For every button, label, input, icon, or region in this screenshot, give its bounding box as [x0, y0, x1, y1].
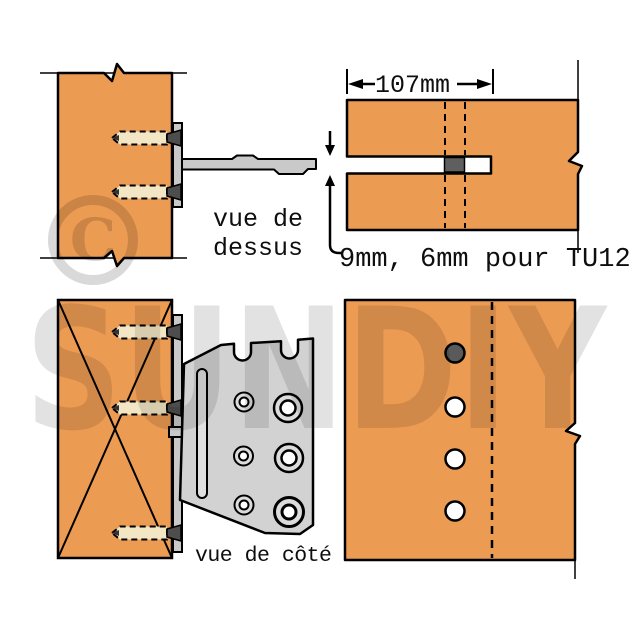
filled-drill-hole — [446, 344, 465, 363]
drill-hole — [446, 502, 465, 521]
bracket-arm-cross-section — [445, 158, 465, 173]
bolt-hole — [274, 394, 304, 527]
wood-post-top-view — [58, 64, 172, 266]
top-view-caption-line2: dessus — [213, 234, 303, 263]
beam-face-view-group — [345, 300, 580, 579]
screw — [112, 400, 181, 416]
screw — [112, 130, 181, 146]
dimension-slot-height — [325, 131, 342, 253]
top-view-caption-line1: vue de — [213, 205, 303, 234]
side-view-caption: vue de côté — [195, 544, 331, 568]
illustration-canvas: 107mm vue dedessus 9mm, 6mm pour TU12 vu… — [0, 0, 640, 640]
beam-face — [345, 300, 580, 560]
drill-hole — [446, 450, 465, 469]
dimension-label-107mm: 107mm — [375, 71, 450, 100]
drill-hole — [446, 398, 465, 417]
top-view-caption: vue dedessus — [213, 205, 303, 263]
vertical-slot — [197, 369, 207, 498]
side-view-group — [58, 300, 313, 558]
screw — [112, 184, 181, 200]
screw — [112, 324, 181, 340]
bracket-arm-top-view — [182, 156, 316, 175]
slot-height-note: 9mm, 6mm pour TU12 — [339, 245, 631, 275]
screw — [112, 525, 181, 541]
slotted-beam-top-view-group — [325, 60, 582, 253]
